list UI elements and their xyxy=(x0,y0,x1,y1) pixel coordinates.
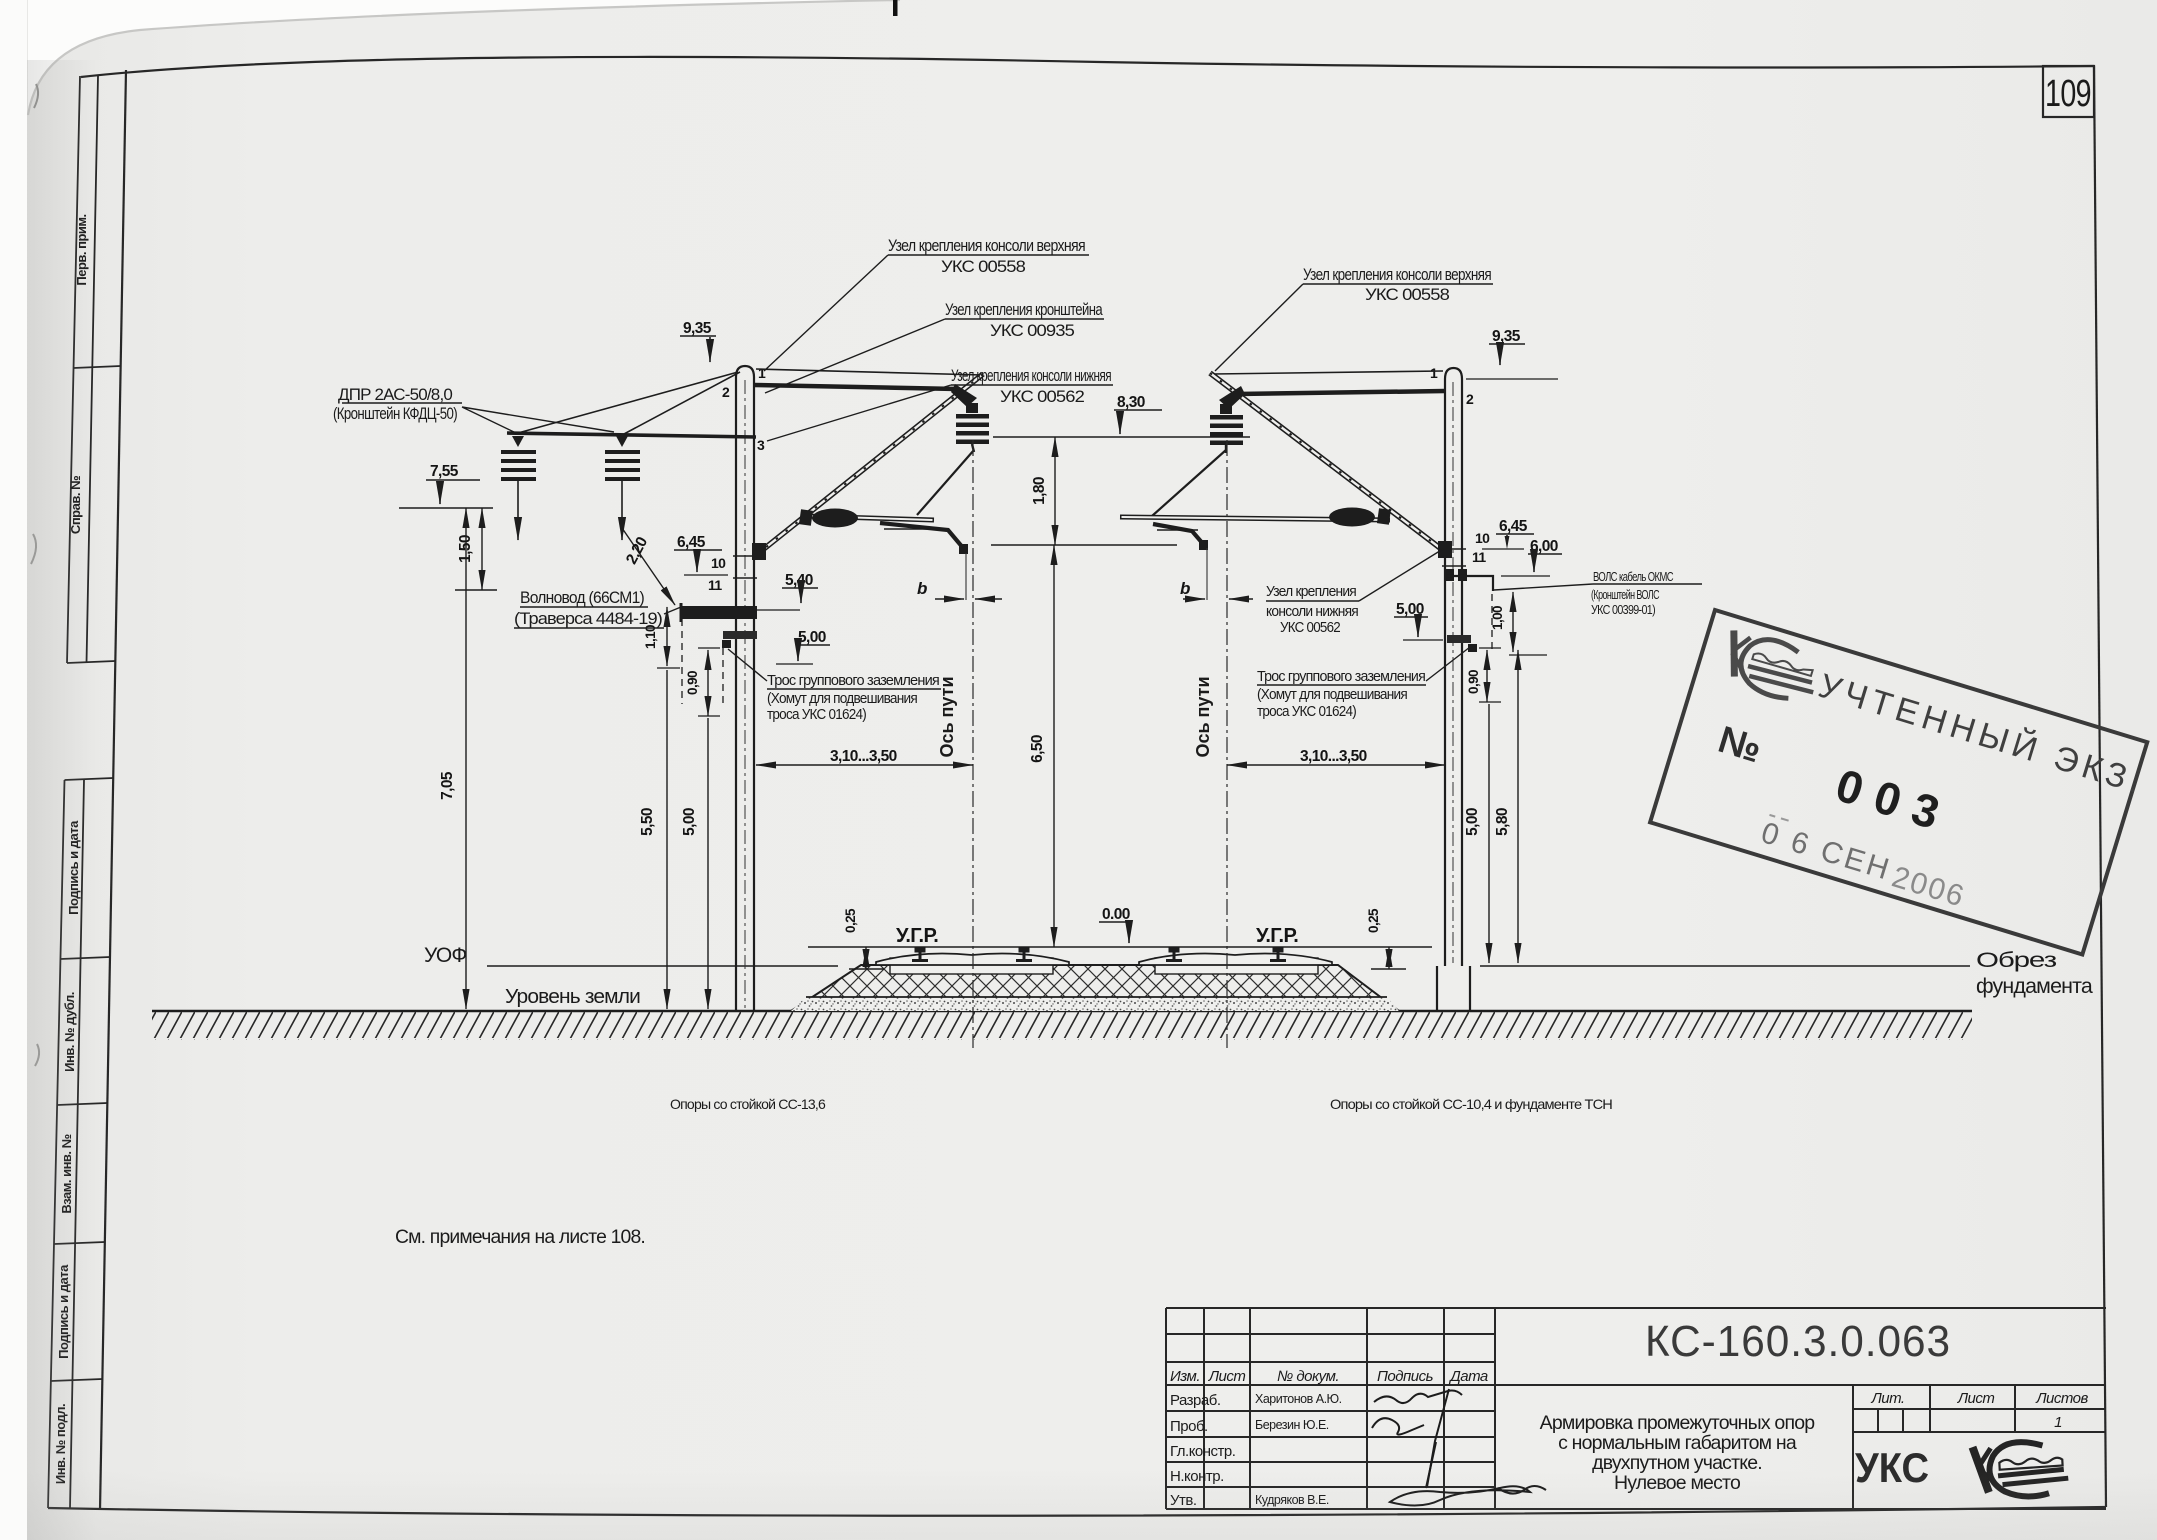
svg-text:Изм.: Изм. xyxy=(1170,1368,1200,1385)
svg-text:10: 10 xyxy=(1475,530,1490,546)
svg-text:1,00: 1,00 xyxy=(1490,606,1505,630)
svg-text:Трос группового заземления: Трос группового заземления xyxy=(1257,669,1425,685)
svg-text:7,55: 7,55 xyxy=(430,463,459,480)
svg-text:консоли нижняя: консоли нижняя xyxy=(1266,604,1358,620)
svg-text:ДПР 2АС-50/8,0: ДПР 2АС-50/8,0 xyxy=(338,385,452,404)
svg-text:(Хомут для подвешивания: (Хомут для подвешивания xyxy=(767,691,917,707)
svg-text:2: 2 xyxy=(1466,391,1474,407)
svg-text:1,80: 1,80 xyxy=(1031,477,1048,505)
svg-text:0,25: 0,25 xyxy=(1366,908,1381,933)
svg-text:УКС 00562: УКС 00562 xyxy=(1280,620,1341,636)
svg-text:5,40: 5,40 xyxy=(785,572,813,589)
svg-text:8,30: 8,30 xyxy=(1117,394,1145,411)
svg-text:Подпись: Подпись xyxy=(1377,1368,1434,1385)
svg-text:фундамента: фундамента xyxy=(1976,975,2093,998)
svg-text:3: 3 xyxy=(757,437,765,453)
svg-text:6,45: 6,45 xyxy=(1499,518,1528,535)
svg-text:УОФ: УОФ xyxy=(424,944,467,967)
svg-text:b: b xyxy=(917,579,927,598)
svg-text:5,00: 5,00 xyxy=(1464,808,1481,836)
svg-text:Армировка промежуточных опор: Армировка промежуточных опор xyxy=(1540,1412,1816,1434)
svg-text:У.Г.Р.: У.Г.Р. xyxy=(1256,925,1298,947)
svg-text:0,25: 0,25 xyxy=(843,908,858,933)
svg-text:(Хомут для подвешивания: (Хомут для подвешивания xyxy=(1257,687,1407,703)
svg-text:6,45: 6,45 xyxy=(677,534,706,551)
svg-text:6,00: 6,00 xyxy=(1530,538,1558,555)
svg-text:Ось пути: Ось пути xyxy=(1193,676,1213,757)
svg-text:(Кронштейн ВОЛС: (Кронштейн ВОЛС xyxy=(1591,587,1659,602)
svg-text:Трос группового заземления: Трос группового заземления xyxy=(767,673,939,689)
svg-text:5,00: 5,00 xyxy=(798,629,826,646)
svg-text:с нормальным габаритом на: с нормальным габаритом на xyxy=(1558,1432,1797,1454)
svg-text:1: 1 xyxy=(2054,1414,2062,1431)
svg-text:УКС 00558: УКС 00558 xyxy=(1365,285,1449,304)
svg-text:b: b xyxy=(1180,579,1190,598)
svg-text:9,35: 9,35 xyxy=(1492,328,1521,345)
svg-text:3,10...3,50: 3,10...3,50 xyxy=(1300,748,1367,765)
svg-text:9,35: 9,35 xyxy=(683,320,712,337)
svg-text:7,05: 7,05 xyxy=(439,771,456,800)
svg-text:Харитонов А.Ю.: Харитонов А.Ю. xyxy=(1255,1392,1342,1406)
svg-text:11: 11 xyxy=(1472,549,1486,565)
svg-text:109: 109 xyxy=(2045,73,2091,115)
svg-text:УКС 00562: УКС 00562 xyxy=(1000,387,1084,406)
svg-text:Дата: Дата xyxy=(1448,1368,1488,1385)
svg-text:ВОЛС кабель ОКМС: ВОЛС кабель ОКМС xyxy=(1593,569,1673,584)
svg-text:№ докум.: № докум. xyxy=(1277,1368,1339,1385)
svg-text:Узел крепления консоли верхняя: Узел крепления консоли верхняя xyxy=(1303,265,1491,284)
svg-text:троса УКС 01624): троса УКС 01624) xyxy=(1257,704,1356,720)
svg-text:10: 10 xyxy=(711,555,726,571)
svg-text:См. примечания на листе 108.: См. примечания на листе 108. xyxy=(395,1227,645,1248)
svg-text:1: 1 xyxy=(758,365,766,381)
svg-text:(Траверса 4484-19): (Траверса 4484-19) xyxy=(514,609,662,628)
svg-text:Гл.констр.: Гл.констр. xyxy=(1170,1443,1235,1460)
svg-text:Опоры со стойкой СС-10,4 и фун: Опоры со стойкой СС-10,4 и фундаменте ТС… xyxy=(1330,1096,1612,1112)
svg-text:5,00: 5,00 xyxy=(1396,601,1424,618)
svg-text:0,90: 0,90 xyxy=(1466,670,1481,694)
svg-text:5,80: 5,80 xyxy=(1494,808,1511,836)
svg-text:Узел крепления консоли верхняя: Узел крепления консоли верхняя xyxy=(888,236,1085,255)
svg-text:Лит.: Лит. xyxy=(1870,1390,1904,1407)
svg-text:0.00: 0.00 xyxy=(1102,906,1130,923)
svg-text:Узел крепления кронштейна: Узел крепления кронштейна xyxy=(945,300,1103,319)
svg-text:Опоры со стойкой СС-13,6: Опоры со стойкой СС-13,6 xyxy=(670,1096,826,1112)
svg-text:Обрез: Обрез xyxy=(1976,949,2056,972)
svg-text:5,00: 5,00 xyxy=(681,808,698,836)
svg-text:Листов: Листов xyxy=(2035,1390,2088,1407)
svg-text:Проб.: Проб. xyxy=(1170,1418,1208,1435)
svg-text:УКС 00399-01): УКС 00399-01) xyxy=(1591,602,1655,617)
svg-text:троса УКС 01624): троса УКС 01624) xyxy=(767,707,866,723)
svg-text:Волновод (66СМ1): Волновод (66СМ1) xyxy=(520,588,644,607)
svg-text:Березин Ю.Е.: Березин Ю.Е. xyxy=(1255,1418,1329,1432)
svg-text:Разраб.: Разраб. xyxy=(1170,1392,1221,1409)
svg-text:УКС 00558: УКС 00558 xyxy=(941,257,1025,276)
svg-text:Уровень земли: Уровень земли xyxy=(505,986,640,1008)
svg-text:3,10...3,50: 3,10...3,50 xyxy=(830,748,897,765)
svg-text:Узел крепления: Узел крепления xyxy=(1266,584,1356,600)
svg-text:Узел крепления консоли нижняя: Узел крепления консоли нижняя xyxy=(951,366,1111,385)
svg-text:0,90: 0,90 xyxy=(685,671,700,695)
svg-text:2: 2 xyxy=(722,384,730,400)
svg-text:У.Г.Р.: У.Г.Р. xyxy=(896,925,938,947)
svg-text:КС-160.3.0.063: КС-160.3.0.063 xyxy=(1645,1317,1951,1366)
svg-text:(Кронштейн КФДЦ-50): (Кронштейн КФДЦ-50) xyxy=(333,404,457,423)
svg-text:УКС 00935: УКС 00935 xyxy=(990,321,1074,340)
svg-text:Лист: Лист xyxy=(1957,1390,1995,1407)
svg-text:5,50: 5,50 xyxy=(639,808,656,836)
svg-text:6,50: 6,50 xyxy=(1029,735,1046,763)
svg-text:1: 1 xyxy=(1430,365,1438,381)
svg-text:Лист: Лист xyxy=(1208,1368,1246,1385)
svg-text:11: 11 xyxy=(708,577,722,593)
